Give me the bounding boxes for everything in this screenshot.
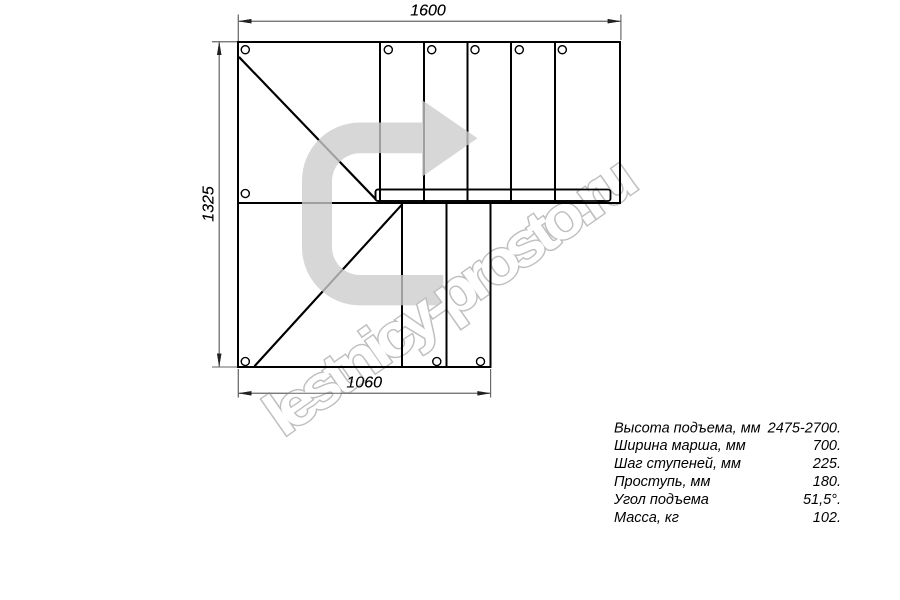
svg-text:Масса, кг: Масса, кг (614, 510, 679, 526)
svg-text:2475-2700.: 2475-2700. (767, 420, 841, 436)
svg-text:180.: 180. (813, 474, 841, 490)
svg-text:700.: 700. (813, 438, 841, 454)
svg-text:51,5°.: 51,5°. (803, 492, 841, 508)
svg-text:Шаг ступеней, мм: Шаг ступеней, мм (614, 456, 741, 472)
svg-text:225.: 225. (812, 456, 841, 472)
svg-text:Проступь, мм: Проступь, мм (614, 474, 710, 490)
svg-text:102.: 102. (813, 510, 841, 526)
svg-text:Ширина марша, мм: Ширина марша, мм (614, 438, 746, 454)
svg-text:Угол подъема: Угол подъема (613, 492, 709, 508)
svg-text:Высота подъема, мм: Высота подъема, мм (614, 420, 761, 436)
